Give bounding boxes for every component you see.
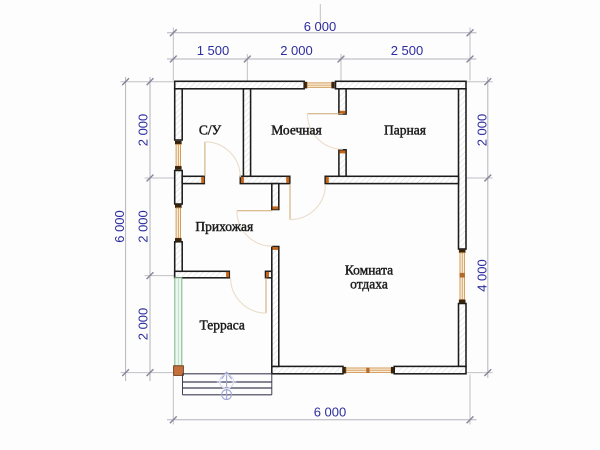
svg-text:С/У: С/У: [199, 122, 222, 137]
svg-text:2 000: 2 000: [135, 114, 150, 147]
svg-text:1 500: 1 500: [197, 43, 230, 58]
svg-text:6 000: 6 000: [304, 19, 337, 34]
svg-text:2 000: 2 000: [135, 210, 150, 243]
svg-text:6 000: 6 000: [314, 404, 347, 419]
svg-text:2 000: 2 000: [280, 43, 313, 58]
svg-text:Терраса: Терраса: [200, 318, 245, 333]
svg-text:6 000: 6 000: [112, 210, 127, 243]
svg-text:Комната: Комната: [345, 263, 393, 278]
svg-text:2 000: 2 000: [135, 308, 150, 341]
svg-text:Парная: Парная: [384, 123, 426, 138]
svg-text:Моечная: Моечная: [271, 123, 321, 138]
svg-text:отдаха: отдаха: [350, 277, 388, 292]
svg-text:2 500: 2 500: [391, 43, 424, 58]
svg-text:Прихожая: Прихожая: [195, 219, 253, 234]
svg-text:2 000: 2 000: [474, 114, 489, 147]
svg-text:4 000: 4 000: [474, 259, 489, 292]
